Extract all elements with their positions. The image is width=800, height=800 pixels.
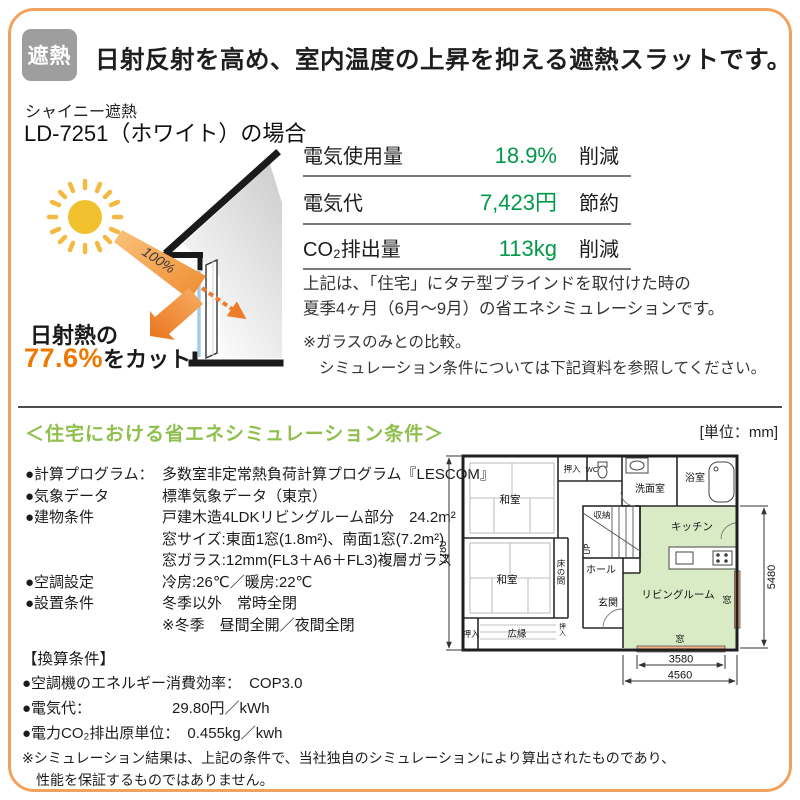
room-label-genkan: 玄関 — [598, 596, 618, 609]
savings-table: 電気使用量 18.9% 削減 電気代 7,423円 節約 CO₂排出量 113k… — [303, 132, 631, 270]
floor-plan: 和室 和室 押入 WC 洗面室 浴室 キッチン 収納 UP ホール 玄関 広縁 … — [440, 443, 792, 698]
sun-icon — [49, 181, 121, 252]
dim-right: 5480 — [766, 565, 778, 589]
cut-percentage: 77.6% — [24, 343, 103, 373]
unit-note: [単位：mm] — [700, 421, 778, 442]
list-item: ●電気代：29.80円／kWh — [22, 696, 442, 721]
cut-text-suffix: をカット — [103, 347, 191, 372]
room-label-oshiire-side: 押入 — [558, 622, 566, 637]
room-label-storage: 収納 — [593, 510, 610, 520]
cut-text: 77.6%をカット — [24, 342, 191, 374]
toilet-icon — [598, 462, 607, 478]
room-label-oshiire-top: 押入 — [563, 464, 581, 474]
summary-notes: ※ガラスのみとの比較。 シミュレーション条件については下記資料を参照してください… — [303, 330, 766, 382]
conditions-list: ●計算プログラム：多数室非定常熱負荷計算プログラム『LESCOM』 ●気象データ… — [25, 464, 455, 636]
row-value: 113kg — [453, 236, 557, 262]
blind-slat-icon — [206, 260, 217, 358]
conversion-heading: 【換算条件】 — [22, 647, 115, 669]
room-label-washitsu-top: 和室 — [500, 493, 521, 506]
list-item: ※冬季 昼間全開／夜間全閉 — [25, 615, 455, 637]
conditions-heading: ＜住宅における省エネシミュレーション条件＞ — [25, 419, 444, 446]
dim-bottom-outer: 4560 — [668, 670, 692, 682]
section-divider — [18, 406, 782, 408]
note-line2: シミュレーション条件については下記資料を参照してください。 — [303, 356, 766, 382]
room-label-wc: WC — [586, 465, 599, 474]
row-value: 7,423円 — [453, 185, 557, 217]
table-row: 電気代 7,423円 節約 — [303, 177, 631, 225]
room-label-living: リビングルーム — [641, 588, 714, 601]
disclaimer: ※シミュレーション結果は、上記の条件で、当社独自のシミュレーションにより算出され… — [22, 747, 675, 791]
page-title: 日射反射を高め、室内温度の上昇を抑える遮熱スラットです。 — [95, 41, 792, 76]
room-label-oshiire-bottom: 押入 — [462, 629, 480, 639]
disclaimer-line1: ※シミュレーション結果は、上記の条件で、当社独自のシミュレーションにより算出され… — [22, 747, 675, 769]
product-model: LD-7251（ホワイト）の場合 — [24, 116, 306, 148]
room-label-senmen: 洗面室 — [635, 482, 665, 495]
list-item: 窓サイズ:東面1窓(1.8m²)、南面1窓(7.2m²) — [25, 529, 455, 551]
window-label-bottom: 窓 — [675, 633, 684, 644]
row-label: 電気代 — [303, 187, 453, 216]
conversion-list: ●空調機のエネルギー消費効率：COP3.0 ●電気代：29.80円／kWh ●電… — [22, 671, 442, 746]
list-item: ●設置条件冬季以外 常時全閉 — [25, 593, 455, 615]
sink-icon — [626, 458, 648, 473]
list-item: 窓ガラス:12mm(FL3＋A6＋FL3)複層ガラス — [25, 550, 455, 572]
table-row: 電気使用量 18.9% 削減 — [303, 132, 631, 177]
room-label-hall: ホール — [586, 564, 616, 576]
dim-bottom-inner: 3580 — [669, 654, 693, 666]
row-value: 18.9% — [453, 143, 557, 169]
room-label-kitchen: キッチン — [671, 521, 713, 533]
note-line1: ※ガラスのみとの比較。 — [303, 330, 766, 356]
row-action: 削減 — [579, 140, 619, 169]
dim-left: 7280 — [440, 541, 449, 565]
list-item: ●空調機のエネルギー消費効率：COP3.0 — [22, 671, 442, 696]
window-label-right: 窓 — [722, 594, 731, 605]
room-label-bath: 浴室 — [685, 471, 705, 484]
room-label-washitsu-bottom: 和室 — [497, 573, 518, 586]
kitchen-counter-icon — [669, 547, 737, 569]
bathtub-icon — [709, 462, 734, 502]
row-label: 電気使用量 — [303, 140, 453, 169]
summary-line2: 夏季4ヶ月（6月～9月）の省エネシミュレーションです。 — [303, 297, 724, 322]
room-label-hiroen: 広縁 — [507, 628, 527, 640]
list-item: ●建物条件戸建木造4LDKリビングルーム部分 24.2m² — [25, 507, 455, 529]
row-label: CO₂排出量 — [303, 233, 453, 262]
reflected-heat-arrow — [150, 288, 203, 340]
tatami-lines — [470, 463, 556, 639]
summary-line1: 上記は、「住宅」にタテ型ブラインドを取付けた時の — [303, 272, 724, 297]
list-item: ●計算プログラム：多数室非定常熱負荷計算プログラム『LESCOM』 — [25, 464, 455, 486]
list-item: ●気象データ標準気象データ（東京） — [25, 486, 455, 508]
heat-shield-badge: 遮熱 — [22, 29, 77, 81]
row-action: 削減 — [579, 233, 619, 262]
list-item: ●空調設定冷房:26℃／暖房:22℃ — [25, 572, 455, 594]
room-label-up: UP — [583, 543, 592, 554]
room-label-tokonoma: 床の間 — [556, 558, 566, 585]
simulation-summary: 上記は、「住宅」にタテ型ブラインドを取付けた時の 夏季4ヶ月（6月～9月）の省エ… — [303, 272, 724, 322]
list-item: ●電力CO₂排出原単位：0.455kg／kwh — [22, 721, 442, 746]
disclaimer-line2: 性能を保証するものではありません。 — [22, 769, 675, 791]
row-action: 節約 — [579, 187, 619, 216]
table-row: CO₂排出量 113kg 削減 — [303, 225, 631, 270]
